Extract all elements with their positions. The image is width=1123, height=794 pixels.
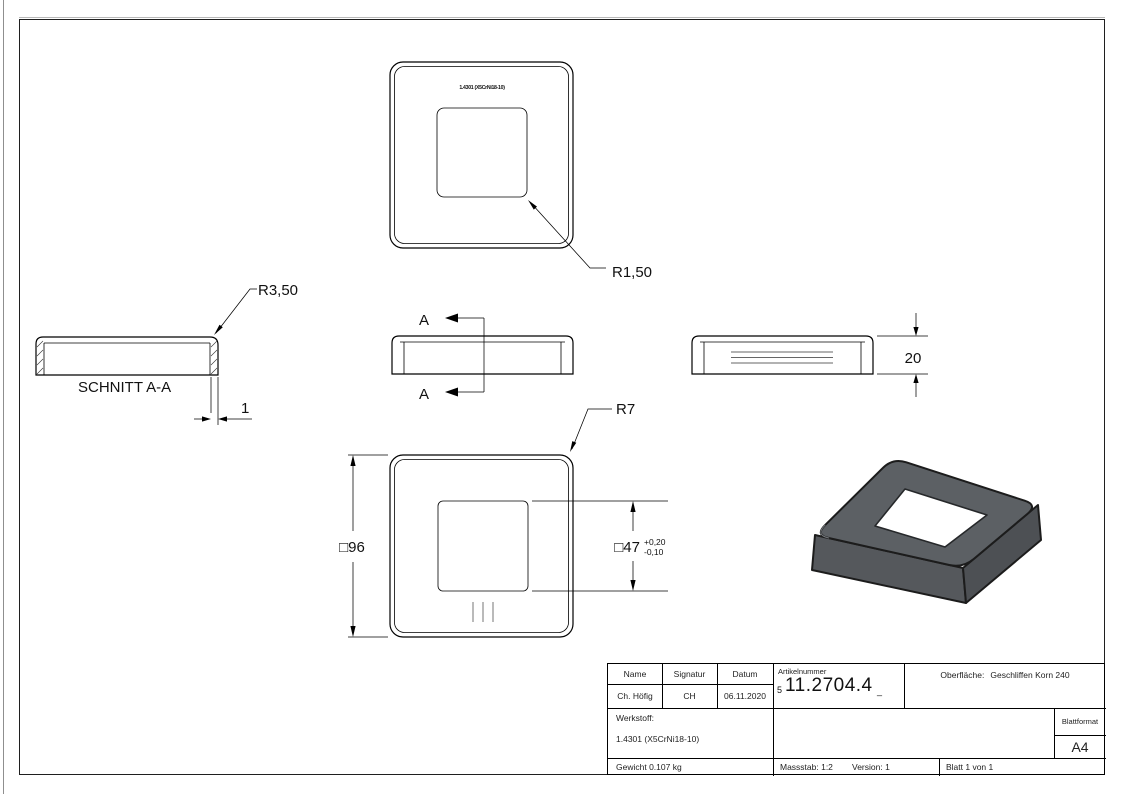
front-view: R7 □96 □47 +0,20 -0,10 bbox=[339, 401, 668, 637]
sheet-format-value: A4 bbox=[1054, 735, 1106, 758]
side-view-cut-source: A A bbox=[392, 312, 573, 403]
tolerance-plus-label: +0,20 bbox=[644, 537, 666, 547]
section-title: SCHNITT A-A bbox=[78, 379, 171, 396]
col-header-signature: Signatur bbox=[662, 664, 717, 684]
material-value: 1.4301 (X5CrNi18-10) bbox=[616, 734, 699, 744]
version-text: Version: 1 bbox=[852, 762, 890, 772]
cut-label-top: A bbox=[419, 312, 429, 329]
author-signature: CH bbox=[662, 684, 717, 708]
surface-cell: Oberfläche: Geschliffen Korn 240 bbox=[904, 670, 1106, 680]
weight-text: Gewicht 0.107 kg bbox=[616, 762, 682, 772]
scale-text: Massstab: 1:2 bbox=[780, 762, 833, 772]
col-header-date: Datum bbox=[717, 664, 773, 684]
inner-square-dim-label: □47 bbox=[614, 539, 640, 556]
outer-square-dim-label: □96 bbox=[339, 539, 365, 556]
article-number-suffix: _ bbox=[877, 686, 882, 696]
title-block: Name Signatur Datum Ch. Höfig CH 06.11.2… bbox=[607, 663, 1105, 775]
radius-1-50-label: R1,50 bbox=[612, 264, 652, 281]
radius-7-label: R7 bbox=[616, 401, 635, 418]
surface-label: Oberfläche: bbox=[940, 670, 984, 680]
sheet-format-label: Blattformat bbox=[1054, 708, 1106, 735]
cut-label-bottom: A bbox=[419, 386, 429, 403]
material-label: Werkstoff: bbox=[616, 713, 654, 723]
iso-view bbox=[812, 461, 1041, 603]
top-view: 1.4301 (X5CrNi18-10) R1,50 bbox=[390, 62, 652, 281]
col-header-name: Name bbox=[608, 664, 662, 684]
surface-value: Geschliffen Korn 240 bbox=[990, 670, 1069, 680]
thickness-dim-label: 1 bbox=[241, 400, 249, 417]
height-dim-label: 20 bbox=[905, 350, 922, 367]
tolerance-minus-label: -0,10 bbox=[644, 547, 664, 557]
article-number: 11.2704.4 bbox=[785, 675, 873, 697]
material-marking-text: 1.4301 (X5CrNi18-10) bbox=[459, 85, 505, 91]
radius-3-50-label: R3,50 bbox=[258, 282, 298, 299]
author-name: Ch. Höfig bbox=[608, 684, 662, 708]
article-number-prefix: 5 bbox=[777, 685, 782, 695]
section-view: SCHNITT A-A R3,50 1 bbox=[36, 282, 298, 425]
sheet-count-text: Blatt 1 von 1 bbox=[946, 762, 993, 772]
drawing-date: 06.11.2020 bbox=[717, 684, 773, 708]
right-side-view: 20 bbox=[692, 313, 928, 397]
drawing-sheet: 1.4301 (X5CrNi18-10) R1,50 SCHNITT A-A R… bbox=[0, 0, 1123, 794]
